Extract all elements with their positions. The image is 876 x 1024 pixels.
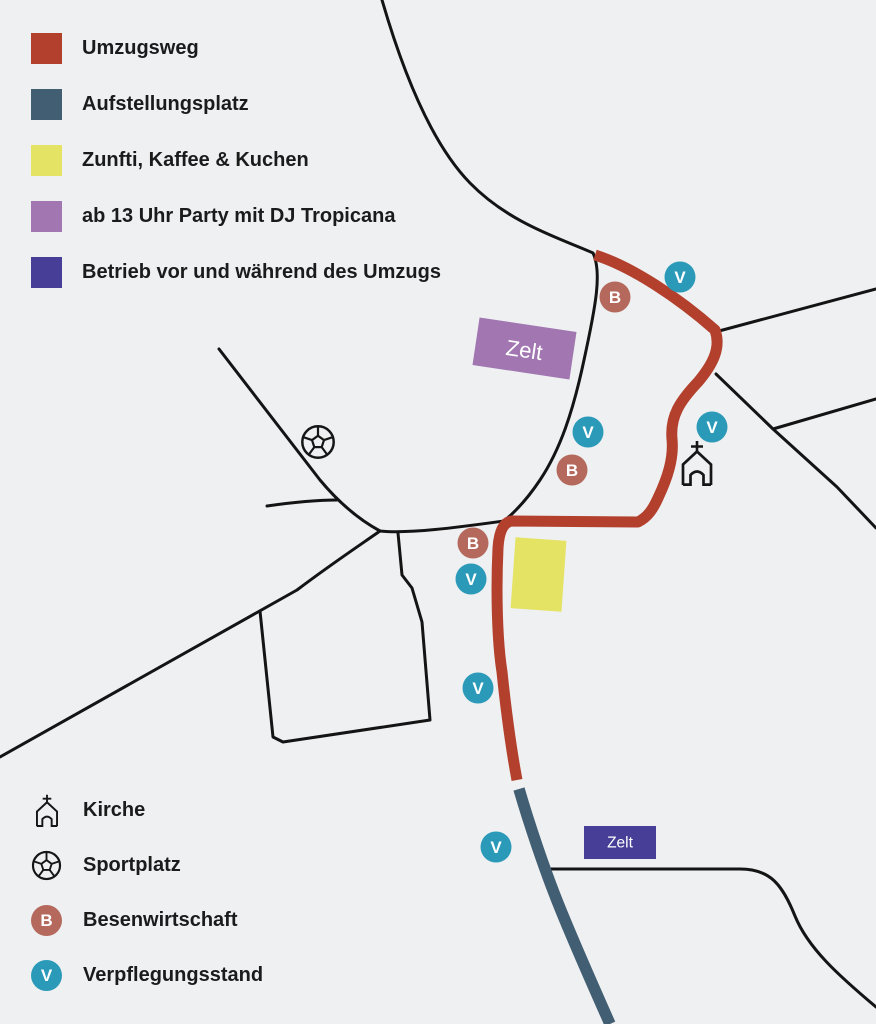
marker-v: V	[665, 262, 696, 293]
svg-text:V: V	[490, 838, 502, 857]
svg-text:V: V	[465, 570, 477, 589]
svg-text:V: V	[706, 418, 718, 437]
legend-label: Kirche	[83, 799, 145, 822]
soccer-icon	[302, 426, 333, 457]
legend-item-umzugsweg: Umzugsweg	[31, 33, 441, 64]
aufstellungsplatz-swatch	[31, 89, 62, 120]
svg-text:B: B	[467, 534, 479, 553]
legend-label: Aufstellungsplatz	[82, 93, 249, 116]
legend-item-zunfti: Zunfti, Kaffee & Kuchen	[31, 145, 441, 176]
marker-b: B	[458, 528, 489, 559]
legend-item-kirche: Kirche	[30, 794, 263, 827]
betrieb-swatch	[31, 257, 62, 288]
betrieb-tent-label: Zelt	[607, 835, 634, 852]
legend-label: Zunfti, Kaffee & Kuchen	[82, 149, 309, 172]
legend-label: Verpflegungsstand	[83, 964, 263, 987]
umzugsweg-swatch	[31, 33, 62, 64]
legend-item-aufstellungsplatz: Aufstellungsplatz	[31, 89, 441, 120]
aufstellungsplatz-route	[519, 789, 610, 1024]
svg-text:V: V	[472, 679, 484, 698]
legend-label: Umzugsweg	[82, 37, 199, 60]
svg-text:B: B	[609, 288, 621, 307]
legend-item-verpflegungsstand: V Verpflegungsstand	[30, 959, 263, 992]
marker-b: B	[557, 455, 588, 486]
road-southeast-fork	[716, 374, 876, 528]
zunfti-rect	[511, 537, 567, 611]
legend-item-betrieb: Betrieb vor und während des Umzugs	[31, 257, 441, 288]
party-tent-area: Zelt	[472, 318, 576, 380]
legend-points: Kirche Sportplatz B Besenwirtschaft V Ve…	[30, 794, 263, 992]
legend-label: Besenwirtschaft	[83, 909, 238, 932]
road-sportplatz-diagonal	[219, 349, 380, 531]
zunfti-area	[511, 537, 567, 611]
verpflegung-badge-icon: V	[30, 959, 63, 992]
marker-b: B	[600, 282, 631, 313]
legend-item-sportplatz: Sportplatz	[30, 849, 263, 882]
church-legend-icon	[30, 794, 63, 827]
betrieb-tent-area: Zelt	[584, 826, 656, 859]
legend-item-besenwirtschaft: B Besenwirtschaft	[30, 904, 263, 937]
svg-text:V: V	[674, 268, 686, 287]
svg-text:B: B	[566, 461, 578, 480]
event-route-map: Zelt Zelt VBVBVBVVV Umzugsweg Aufstellun…	[0, 0, 876, 1024]
church-icon	[683, 441, 711, 485]
marker-v: V	[697, 412, 728, 443]
road-stub-west	[267, 500, 337, 506]
party-swatch	[31, 201, 62, 232]
legend-item-party: ab 13 Uhr Party mit DJ Tropicana	[31, 201, 441, 232]
legend-areas: Umzugsweg Aufstellungsplatz Zunfti, Kaff…	[31, 33, 441, 288]
besen-badge-icon: B	[30, 904, 63, 937]
legend-label: ab 13 Uhr Party mit DJ Tropicana	[82, 205, 395, 228]
zunfti-swatch	[31, 145, 62, 176]
road-junction-east	[380, 521, 504, 532]
road-field-loop	[260, 533, 430, 742]
marker-v: V	[481, 832, 512, 863]
legend-label: Sportplatz	[83, 854, 181, 877]
road-northeast	[719, 289, 876, 331]
road-southwest	[0, 531, 380, 757]
svg-text:V: V	[582, 423, 594, 442]
marker-v: V	[573, 417, 604, 448]
soccer-legend-icon	[30, 849, 63, 882]
marker-v: V	[463, 673, 494, 704]
legend-label: Betrieb vor und während des Umzugs	[82, 261, 441, 284]
marker-v: V	[456, 564, 487, 595]
